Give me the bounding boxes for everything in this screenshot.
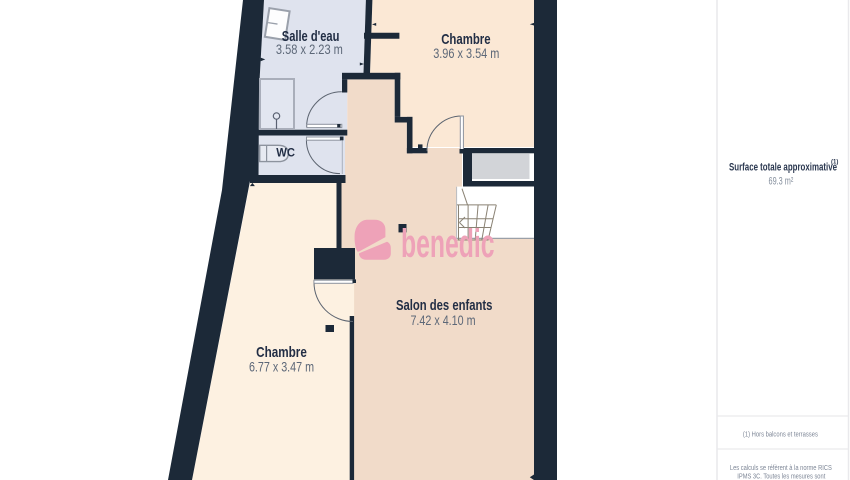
svg-text:WC: WC xyxy=(276,146,295,160)
svg-text:3.96 x 3.54 m: 3.96 x 3.54 m xyxy=(433,45,499,61)
svg-text:Surface totale approximative: Surface totale approximative xyxy=(729,162,837,174)
svg-text:Les calculs se réfèrent à la n: Les calculs se réfèrent à la norme RICS xyxy=(730,465,832,472)
svg-text:7.42 x 4.10 m: 7.42 x 4.10 m xyxy=(410,312,475,328)
svg-text:(1) Hors balcons et terrasses: (1) Hors balcons et terrasses xyxy=(743,431,818,438)
svg-text:IPMS 3C. Toutes les mesures so: IPMS 3C. Toutes les mesures sont xyxy=(737,473,825,480)
svg-text:(1): (1) xyxy=(831,160,838,166)
svg-text:69.3 m²: 69.3 m² xyxy=(769,176,794,188)
svg-text:benedic: benedic xyxy=(401,222,495,266)
svg-text:3.58 x 2.23 m: 3.58 x 2.23 m xyxy=(276,41,343,57)
svg-text:6.77 x 3.47 m: 6.77 x 3.47 m xyxy=(249,359,314,375)
